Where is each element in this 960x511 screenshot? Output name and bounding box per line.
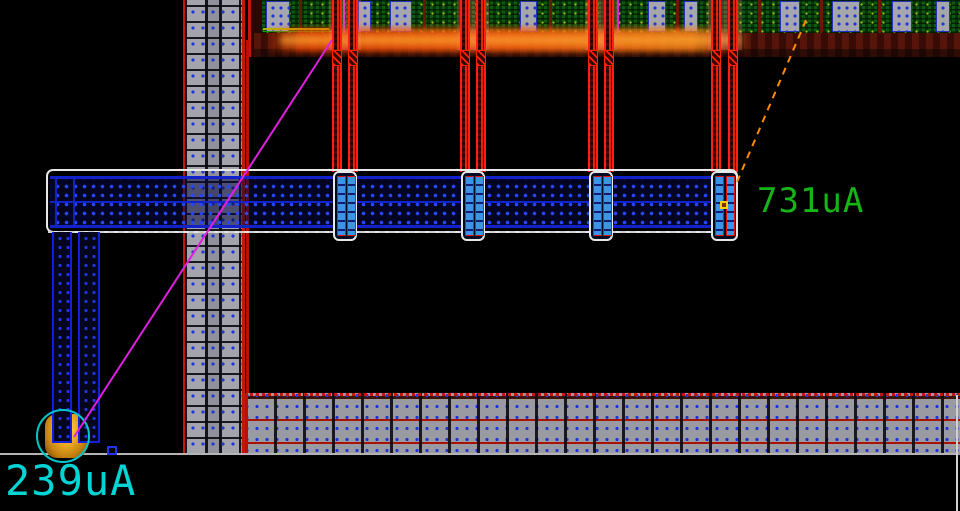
red-net-bar <box>728 0 738 172</box>
layout-edge-line <box>0 453 958 455</box>
red-net-bar <box>348 0 358 172</box>
red-net-bar <box>476 0 486 172</box>
via-column <box>337 176 346 236</box>
cell-via-strip <box>832 1 860 32</box>
red-net-bar <box>332 0 342 172</box>
red-net-bar <box>460 0 470 172</box>
via-x-marker <box>728 50 738 66</box>
red-net-bar <box>711 0 721 172</box>
red-net-column[interactable] <box>588 0 614 172</box>
cell-via-strip <box>780 1 800 32</box>
via-x-marker <box>332 50 342 66</box>
via-array[interactable] <box>461 171 485 241</box>
via-array[interactable] <box>589 171 613 241</box>
via-column <box>603 176 612 236</box>
via-x-marker <box>588 50 598 66</box>
via-x-marker <box>348 50 358 66</box>
cell-via-strip <box>936 1 950 32</box>
via-x-marker <box>604 50 614 66</box>
selected-route-dashed-edge <box>48 231 736 233</box>
cell-via-strip <box>892 1 912 32</box>
via-x-marker <box>711 50 721 66</box>
red-net-column[interactable] <box>711 0 739 172</box>
via-x-marker <box>460 50 470 66</box>
layout-canvas[interactable]: 239uA 731uA <box>0 0 960 511</box>
red-net-column[interactable] <box>332 0 358 172</box>
metal-route-centerline <box>50 201 736 203</box>
cell-boundary-line <box>878 0 881 33</box>
via-column <box>465 176 474 236</box>
right-edge-line <box>956 395 958 511</box>
via-column <box>347 176 356 236</box>
via-array-probed[interactable] <box>711 171 738 241</box>
metal-route-end-line <box>73 176 75 228</box>
current-label-right: 731uA <box>757 181 864 221</box>
probe-ring-highlight[interactable] <box>36 409 90 463</box>
blue-track-bar[interactable] <box>78 232 100 443</box>
probe-square-marker[interactable] <box>720 201 728 209</box>
red-net-bar <box>588 0 598 172</box>
red-net-bar <box>604 0 614 172</box>
small-via-marker <box>107 446 117 455</box>
current-label-left: 239uA <box>5 456 136 505</box>
cell-boundary-line <box>820 0 823 33</box>
metal-route-end-line <box>55 176 57 228</box>
via-column <box>475 176 484 236</box>
via-column <box>593 176 602 236</box>
via-x-marker <box>476 50 486 66</box>
cell-boundary-line <box>758 0 761 33</box>
bottom-power-rail[interactable] <box>245 393 960 455</box>
red-net-column[interactable] <box>460 0 486 172</box>
via-array[interactable] <box>333 171 357 241</box>
